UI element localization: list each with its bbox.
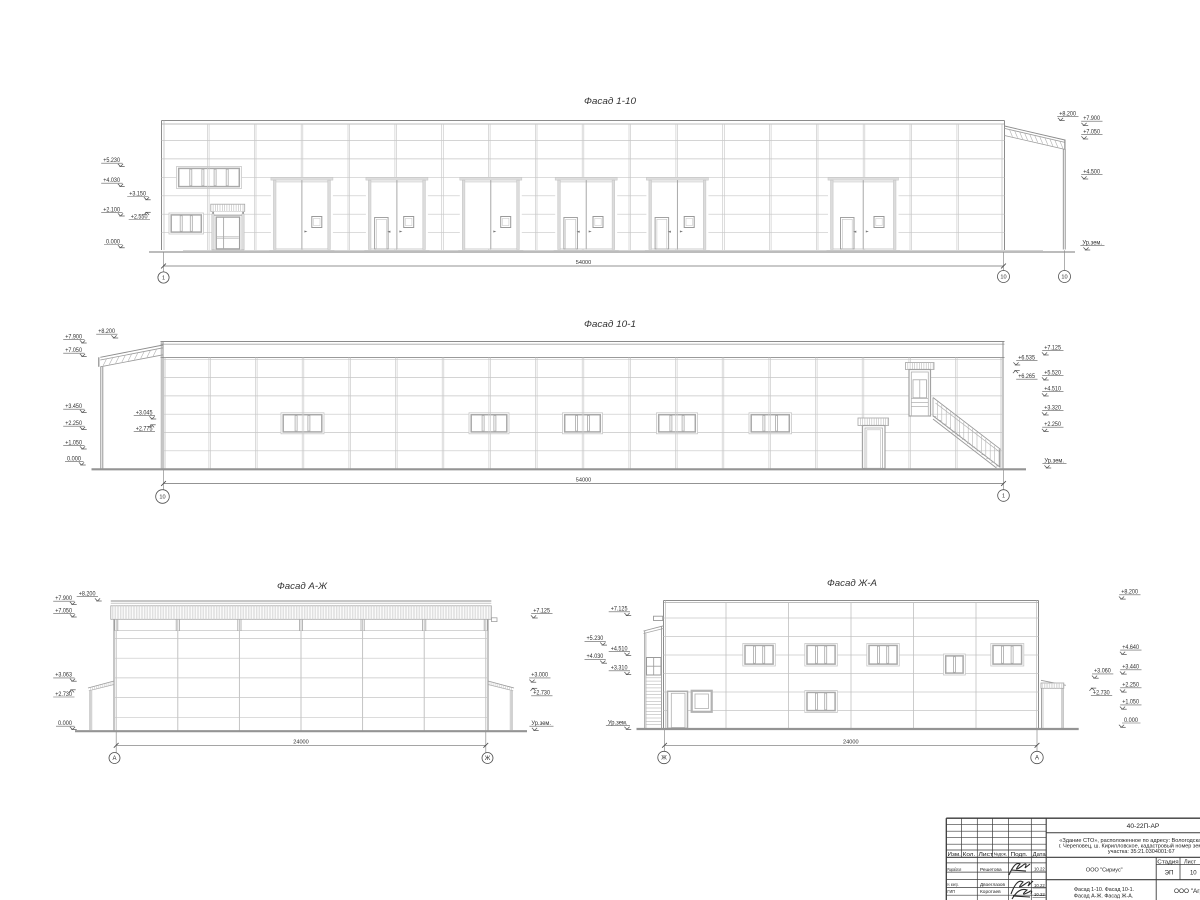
svg-text:10: 10 — [1190, 871, 1197, 877]
svg-text:Лист: Лист — [1184, 859, 1197, 865]
svg-text:Фасад 10-1: Фасад 10-1 — [584, 319, 636, 330]
svg-text:40-22П-АР: 40-22П-АР — [1127, 823, 1160, 830]
svg-text:24000: 24000 — [293, 740, 309, 746]
svg-text:Дата: Дата — [1033, 852, 1047, 858]
svg-text:54000: 54000 — [576, 260, 592, 266]
svg-text:№док.: №док. — [994, 851, 1008, 856]
svg-text:Разработал: Разработал — [947, 867, 961, 872]
svg-text:Фасад 1-10. Фасад 10-1.: Фасад 1-10. Фасад 10-1. — [1074, 887, 1134, 893]
svg-text:10: 10 — [159, 495, 165, 501]
svg-text:1: 1 — [1002, 494, 1005, 500]
svg-text:ЭП: ЭП — [1165, 870, 1174, 877]
svg-text:Ж: Ж — [661, 756, 667, 762]
svg-text:Решетова: Решетова — [980, 867, 1002, 872]
svg-text:Фасад Ж-А: Фасад Ж-А — [827, 578, 877, 589]
svg-text:А: А — [112, 756, 116, 762]
svg-text:10.22: 10.22 — [1034, 892, 1045, 897]
svg-text:ООО "Сириус": ООО "Сириус" — [1086, 868, 1123, 874]
svg-text:1: 1 — [162, 276, 165, 282]
svg-text:Ж: Ж — [485, 756, 491, 762]
svg-text:ГИП: ГИП — [947, 889, 955, 894]
svg-text:Коротаев: Коротаев — [980, 889, 1001, 894]
svg-text:10.22: 10.22 — [1034, 867, 1045, 872]
svg-text:Двоеглазов: Двоеглазов — [980, 882, 1006, 887]
svg-text:10.22: 10.22 — [1034, 883, 1045, 888]
svg-text:Изм.: Изм. — [948, 852, 962, 858]
svg-text:ООО "Агро: ООО "Агро — [1174, 888, 1200, 895]
svg-text:А: А — [1035, 756, 1039, 762]
svg-text:10: 10 — [1000, 275, 1006, 281]
svg-text:24000: 24000 — [843, 740, 859, 746]
svg-text:Подп.: Подп. — [1011, 852, 1028, 858]
svg-text:Фасад А-Ж: Фасад А-Ж — [277, 581, 328, 592]
svg-text:54000: 54000 — [576, 478, 592, 484]
svg-text:10: 10 — [1061, 275, 1067, 281]
svg-text:Фасад 1-10: Фасад 1-10 — [584, 96, 637, 107]
svg-text:Стадия: Стадия — [1157, 859, 1178, 865]
svg-text:Фасад А-Ж. Фасад Ж-А.: Фасад А-Ж. Фасад Ж-А. — [1074, 894, 1133, 900]
svg-text:Кол.: Кол. — [963, 852, 976, 858]
svg-text:участка: 35:21.0304001:67: участка: 35:21.0304001:67 — [1108, 849, 1175, 855]
svg-text:Н. контр.: Н. контр. — [947, 882, 958, 887]
svg-text:Лист: Лист — [979, 852, 994, 858]
